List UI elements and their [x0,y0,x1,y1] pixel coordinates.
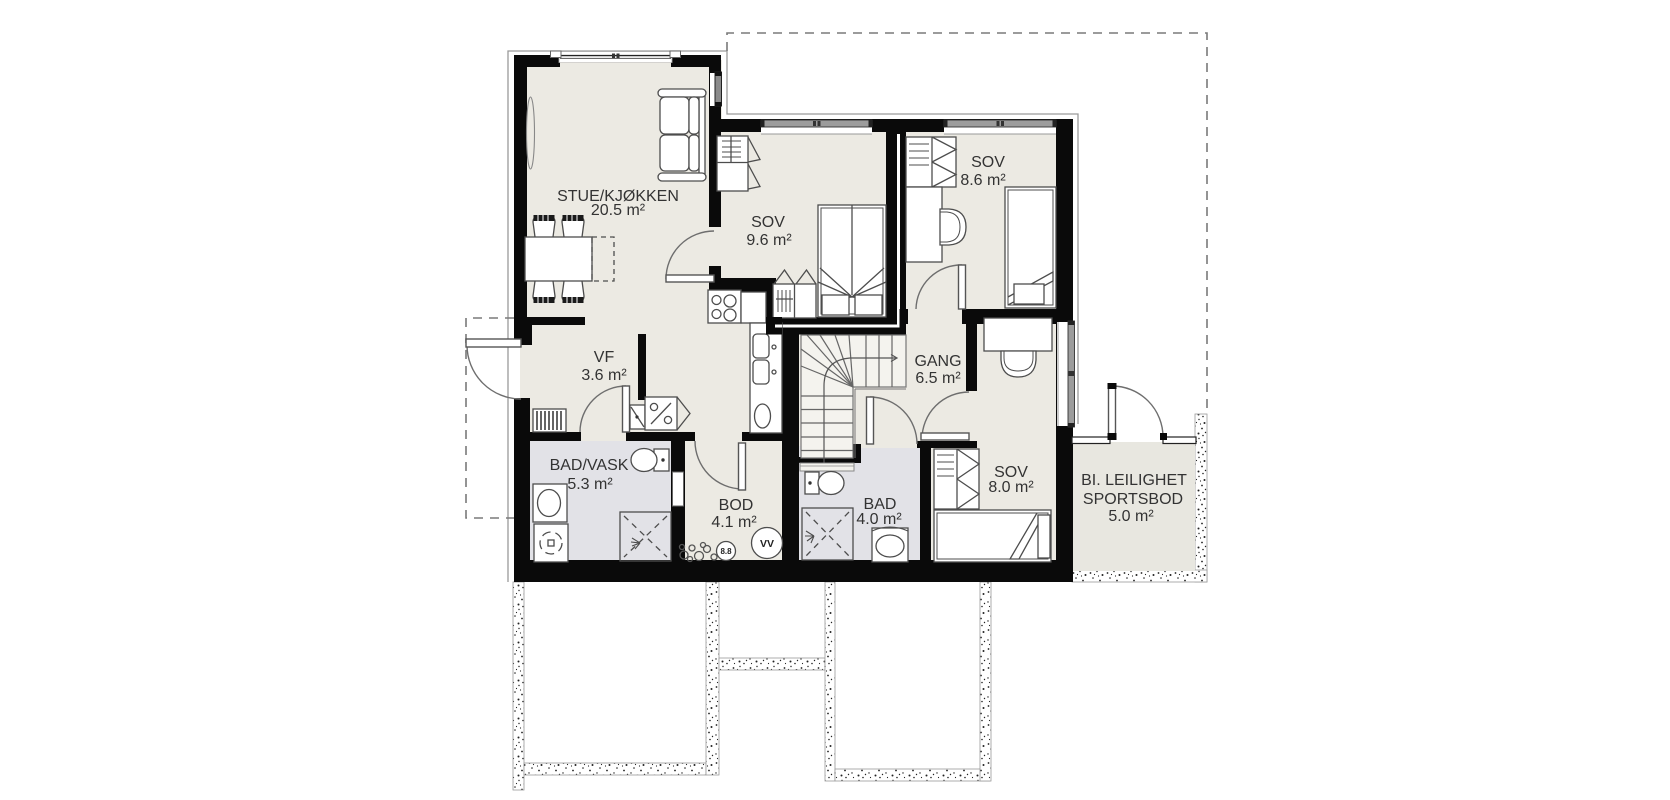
svg-text:20.5 m²: 20.5 m² [591,202,646,219]
svg-text:VF: VF [594,349,615,366]
svg-text:3.6 m²: 3.6 m² [581,367,627,384]
svg-text:6.5 m²: 6.5 m² [915,370,961,387]
svg-text:BI. LEILIGHET: BI. LEILIGHET [1081,472,1187,489]
svg-text:GANG: GANG [914,353,961,370]
svg-text:4.0 m²: 4.0 m² [856,511,902,528]
svg-text:SPORTSBOD: SPORTSBOD [1083,491,1183,508]
svg-text:9.6 m²: 9.6 m² [746,232,792,249]
svg-text:5.0 m²: 5.0 m² [1108,508,1154,525]
svg-text:8.0 m²: 8.0 m² [988,479,1034,496]
svg-text:SOV: SOV [971,154,1005,171]
svg-text:8.6 m²: 8.6 m² [960,172,1006,189]
svg-text:SOV: SOV [751,214,785,231]
svg-text:4.1 m²: 4.1 m² [711,514,757,531]
svg-text:BAD/VASK: BAD/VASK [550,457,629,474]
svg-text:VV: VV [760,538,774,550]
svg-text:8.8: 8.8 [720,547,732,556]
svg-text:5.3 m²: 5.3 m² [567,476,613,493]
svg-text:BOD: BOD [719,497,754,514]
